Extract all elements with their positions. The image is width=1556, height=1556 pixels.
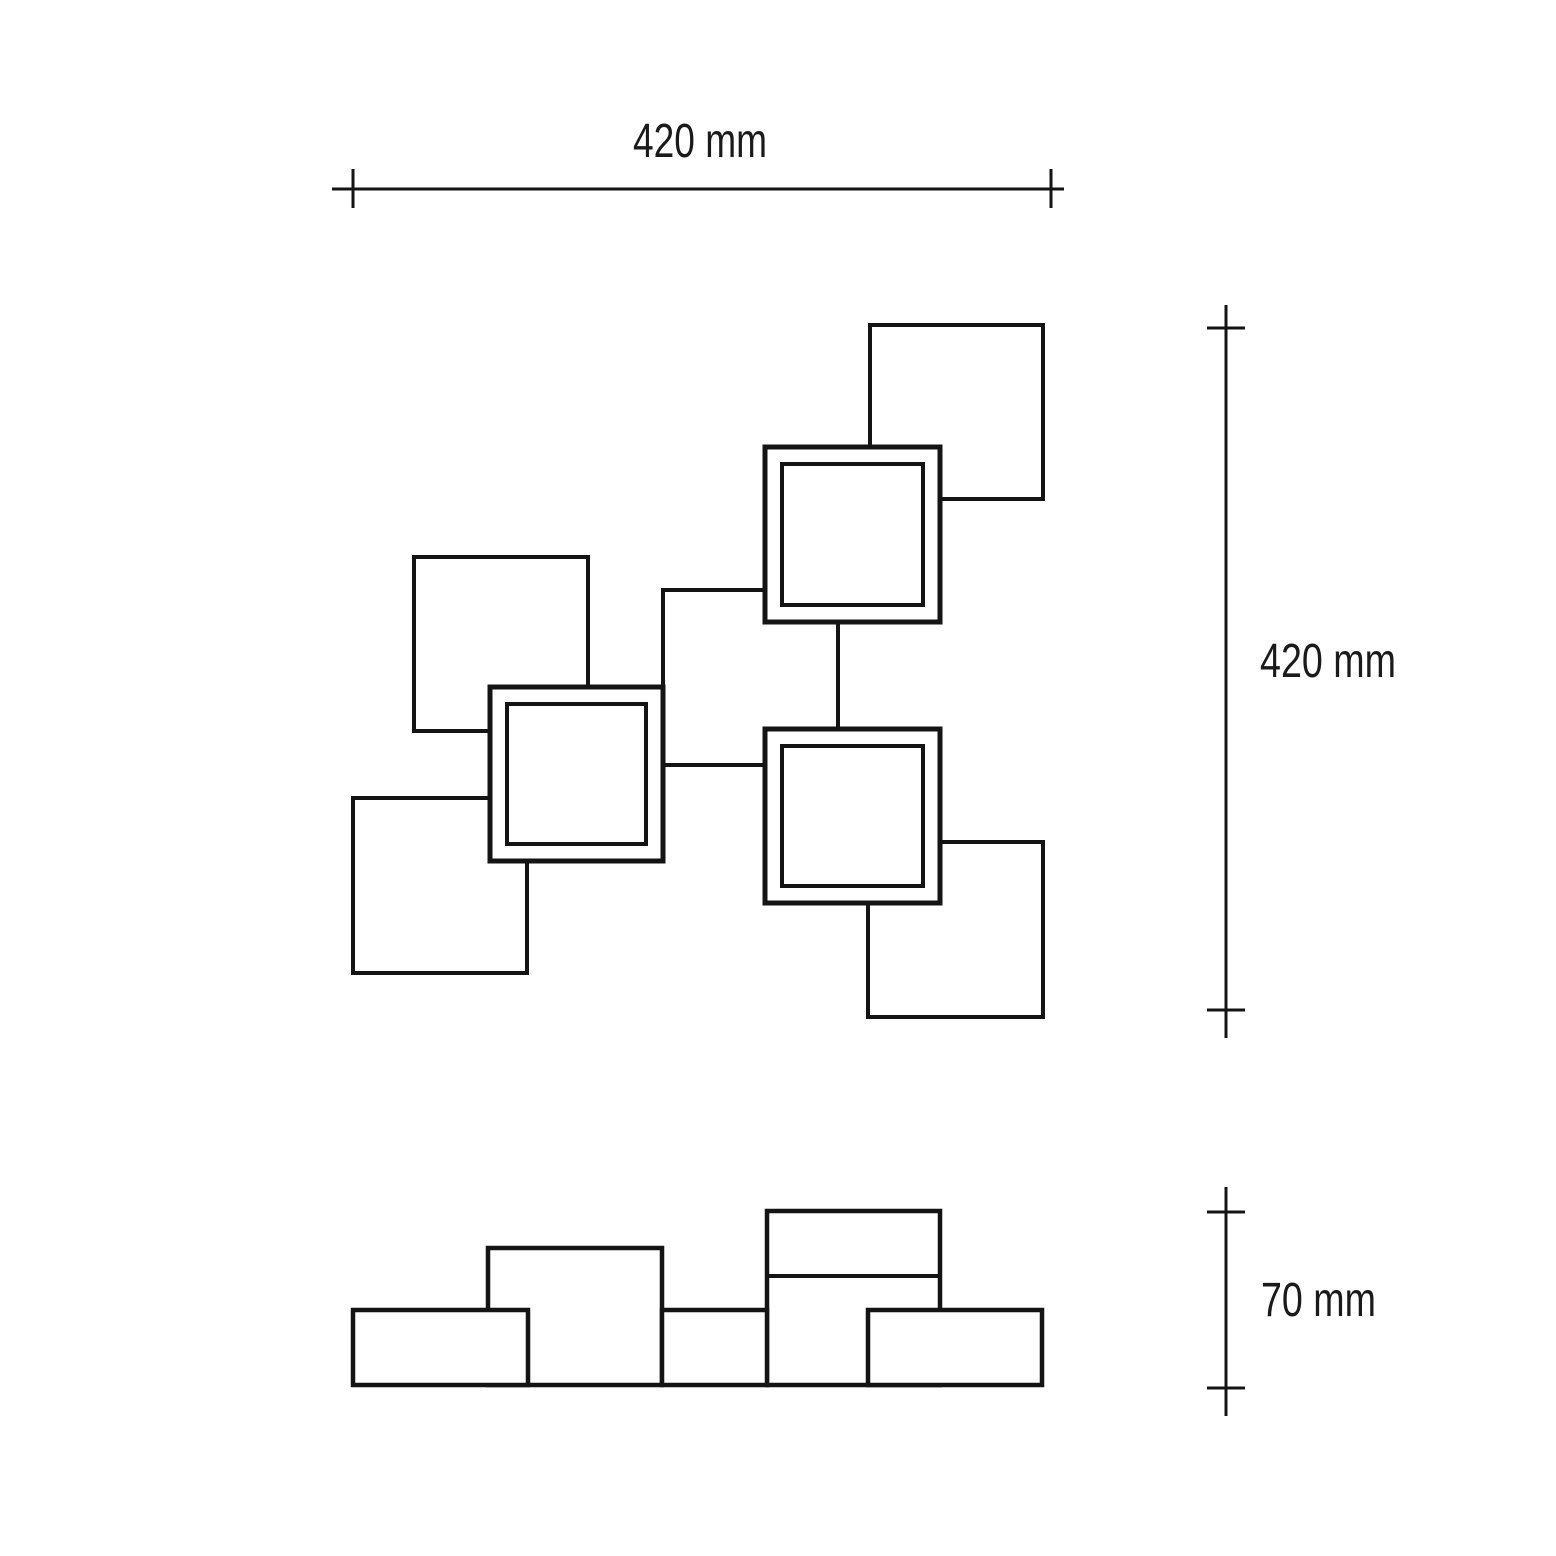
light-square-right-inner xyxy=(782,746,923,886)
width-dimension-label: 420 mm xyxy=(633,115,767,168)
front-view xyxy=(353,325,1043,1017)
light-square-left-inner xyxy=(507,704,646,844)
middle-low-block xyxy=(662,1310,767,1385)
technical-drawing-page: 420 mm 420 mm 70 mm xyxy=(0,0,1556,1556)
left-low-block xyxy=(353,1310,528,1385)
light-square-top-inner xyxy=(782,464,923,605)
side-view xyxy=(353,1211,1042,1385)
height-dimension-label: 420 mm xyxy=(1260,635,1396,688)
dimension-drawing-svg: 420 mm 420 mm 70 mm xyxy=(0,0,1556,1556)
depth-dimension-label: 70 mm xyxy=(1261,1274,1376,1327)
right-low-block xyxy=(868,1310,1042,1385)
